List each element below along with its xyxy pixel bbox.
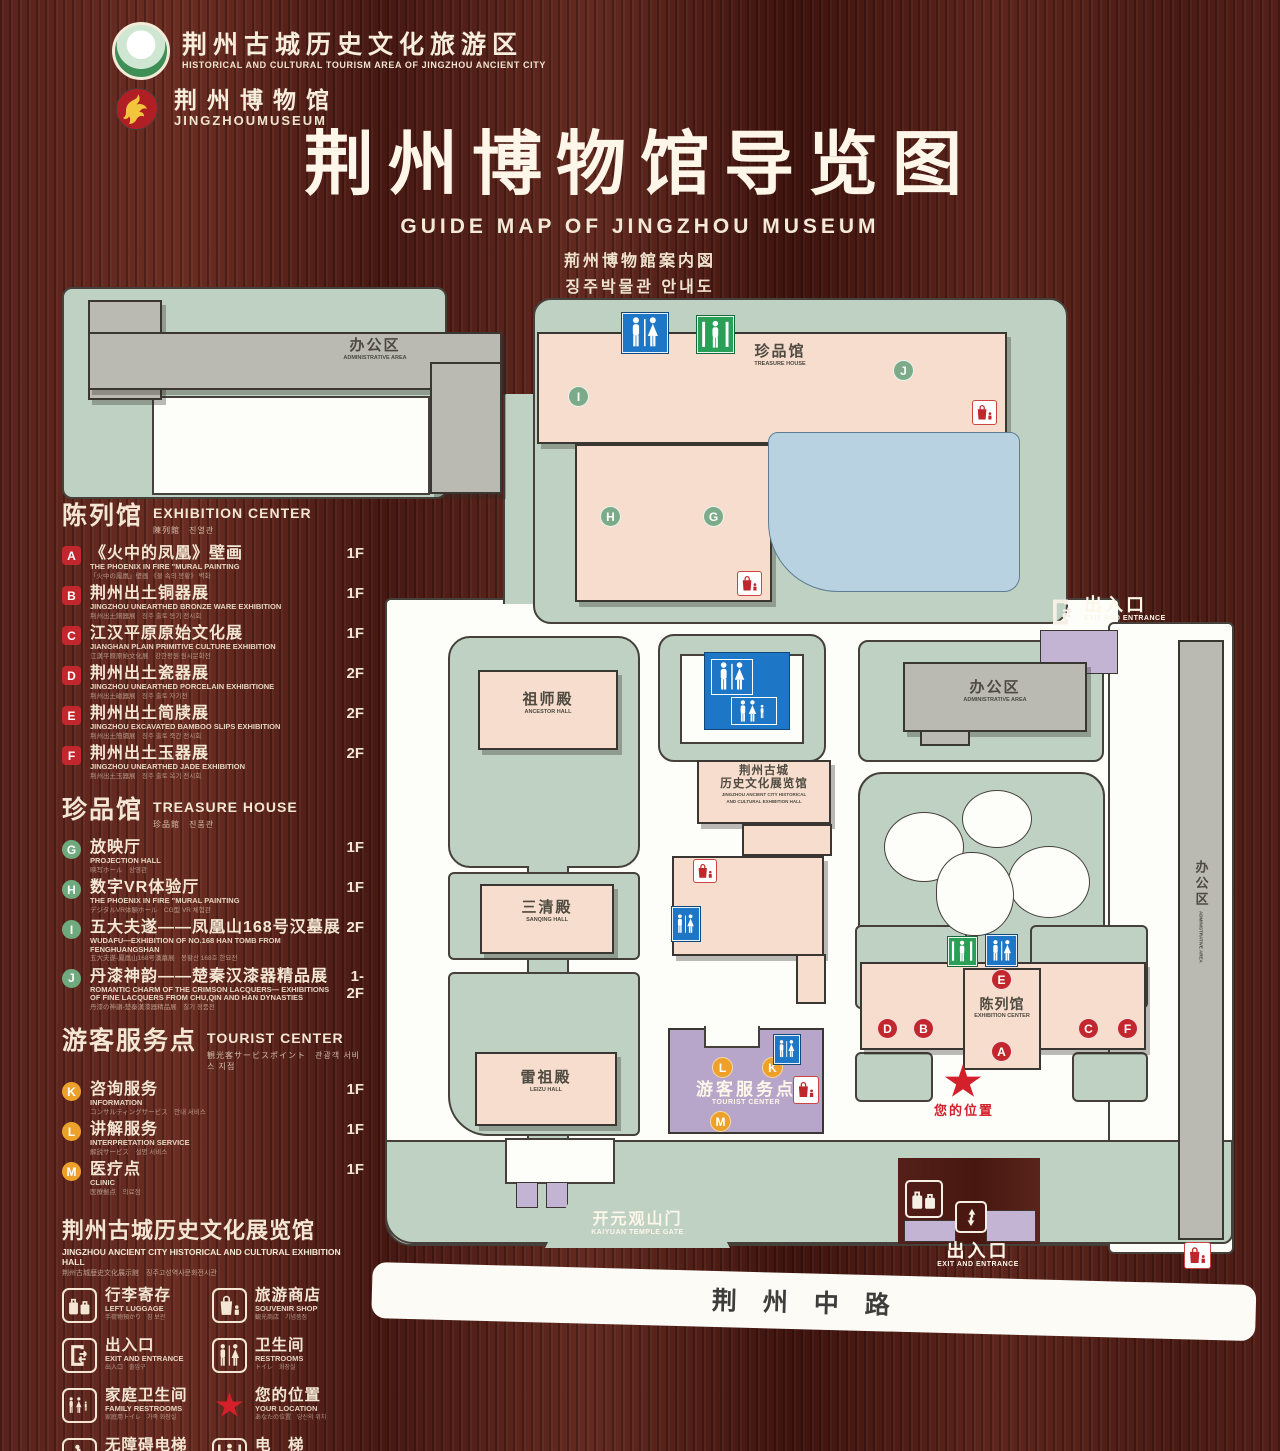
legend-item: L讲解服务INTERPRETATION SERVICE解説サービス 설명 서비스… (62, 1121, 364, 1156)
nw-office-building-wing (430, 362, 502, 494)
map-restroom-icon (622, 313, 668, 353)
garden-pond-blob (962, 790, 1032, 848)
map-marker-M: M (710, 1111, 731, 1132)
legend-section-title: 珍品馆 (62, 797, 143, 823)
page-title-en: GUIDE MAP OF JINGZHOU MUSEUM (280, 215, 1000, 239)
shop-icon (212, 1288, 247, 1323)
legend-section-title-sub: 観光客サービスポイント 관광객 서비스 지점 (207, 1050, 364, 1072)
legend-item-floor: 1F (334, 1161, 364, 1178)
legend-item-text: 丹漆神韵——楚秦汉漆器精品展ROMANTIC CHARM OF THE CRIM… (81, 968, 334, 1012)
luggage-icon (62, 1288, 97, 1323)
your-location-icon (212, 1388, 247, 1423)
page-title: 荆州博物馆导览图 (280, 108, 1000, 209)
exhibition-lawn (1072, 1052, 1148, 1102)
map-marker-H: H (600, 506, 621, 527)
legend-item: B荆州出土铜器展JINGZHOU UNEARTHED BRONZE WARE E… (62, 585, 364, 620)
center-hall-building-wing (796, 954, 826, 1004)
legend-symbols-grid: 行李寄存LEFT LUGGAGE手荷物預かり 짐 보관 旅游商店SOUVENIR… (62, 1288, 364, 1451)
legend-item-badge: M (62, 1162, 81, 1181)
legend-item-badge: J (62, 969, 81, 988)
legend-symbol-exit: 出入口EXIT AND ENTRANCE出入口 출입구 (62, 1338, 212, 1388)
legend-symbol-text: 出入口EXIT AND ENTRANCE出入口 출입구 (105, 1338, 183, 1372)
map-elevator-icon (697, 316, 734, 353)
gate-block (516, 1182, 538, 1208)
legend-item-floor: 1F (334, 545, 364, 562)
legend-item: K咨询服务INFORMATIONコンサルティングサービス 안내 서비스1F (62, 1081, 364, 1116)
legend-item-floor: 1F (334, 839, 364, 856)
garden-pond-blob (936, 852, 1014, 936)
legend-item-text: 荆州出土玉器展JINGZHOU UNEARTHED JADE EXHIBITIO… (81, 745, 334, 780)
legend-item-badge: H (62, 880, 81, 899)
legend-symbol-text: 家庭卫生间FAMILY RESTROOMS家庭用トイレ 가족 화장실 (105, 1388, 188, 1422)
legend-item-badge: I (62, 920, 81, 939)
bottom-exit-label: 出入口EXIT AND ENTRANCE (898, 1242, 1058, 1269)
tourism-area-logo-icon (112, 22, 170, 80)
your-location-label: 您的位置 (922, 1100, 1006, 1119)
legend-symbol-restroom: 卫生间RESTROOMSトイレ 화장실 (212, 1338, 362, 1388)
map-marker-L: L (712, 1057, 733, 1078)
legend-item-text: 江汉平原原始文化展JIANGHAN PLAIN PRIMITIVE CULTUR… (81, 625, 334, 660)
legend-symbol-text: 卫生间RESTROOMSトイレ 화장실 (255, 1338, 305, 1372)
legend-item-floor: 2F (334, 705, 364, 722)
legend-symbol-wheel: 无障碍电梯ACCESSIBLE ELEVATORバリアフリーエレベーター 무장애… (62, 1438, 212, 1451)
legend-item-text: 讲解服务INTERPRETATION SERVICE解説サービス 설명 서비스 (81, 1121, 334, 1156)
nw-office-label: 办公区ADMINISTRATIVE AREA (285, 338, 465, 362)
legend-item-floor: 1F (334, 625, 364, 642)
legend-item-badge: E (62, 706, 81, 725)
legend-symbol-text: 您的位置YOUR LOCATIONあなたの位置 당신의 위치 (255, 1388, 326, 1422)
nw-courtyard (152, 396, 430, 495)
family-icon (62, 1388, 97, 1423)
legend-item: A《火中的凤凰》壁画THE PHOENIX IN FIRE "MURAL PAI… (62, 545, 364, 580)
east-office-label: 办公区ADMINISTRATIVE AREA (905, 680, 1085, 704)
legend-item: J丹漆神韵——楚秦汉漆器精品展ROMANTIC CHARM OF THE CRI… (62, 968, 364, 1012)
map-updown-icon (955, 1201, 987, 1233)
top-exit-label: 出入口EXIT AND ENTRANCE (1084, 596, 1194, 623)
road-label: 荆州中路 (711, 1281, 916, 1322)
legend-item-floor: 1F (334, 585, 364, 602)
tourist-center-notch (704, 1026, 760, 1048)
legend-item-text: 咨询服务INFORMATIONコンサルティングサービス 안내 서비스 (81, 1081, 334, 1116)
legend-symbol-text: 旅游商店SOUVENIR SHOP観光商店 기념품점 (255, 1288, 321, 1322)
map-shop-icon (972, 400, 997, 425)
legend-item-floor: 2F (334, 665, 364, 682)
tourism-area-name: 荆州古城历史文化旅游区 (182, 32, 546, 58)
exhibition-center-label: 陈列馆EXHIBITION CENTER (958, 996, 1046, 1020)
strip-office-label: 办公区ADMINISTRATIVE AREA (1186, 860, 1216, 963)
legend-symbol-luggage: 行李寄存LEFT LUGGAGE手荷物預かり 짐 보관 (62, 1288, 212, 1338)
legend-item-text: 《火中的凤凰》壁画THE PHOENIX IN FIRE "MURAL PAIN… (81, 545, 334, 580)
legend-panel: 陈列馆 EXHIBITION CENTER 陳列館 진열관A《火中的凤凰》壁画T… (62, 503, 364, 1451)
legend-item-text: 五大夫遂——凤凰山168号汉墓展WUDAFU—EXHIBITION OF NO.… (81, 919, 334, 963)
legend-item: M医疗点CLINIC医療拠点 의료점1F (62, 1161, 364, 1196)
map-marker-G: G (703, 506, 724, 527)
legend-item: C江汉平原原始文化展JIANGHAN PLAIN PRIMITIVE CULTU… (62, 625, 364, 660)
ancestor-hall-label: 祖师殿ANCESTOR HALL (478, 692, 618, 716)
map-marker-A: A (991, 1041, 1012, 1062)
legend-item-floor: 1F (334, 1121, 364, 1138)
page-title-ja: 荊州博物館案内図 (280, 247, 1000, 271)
legend-symbol-text: 电 梯ELEVATORエレベーター 엘리베이터 (255, 1438, 325, 1451)
center-hall-label: 荆州古城 历史文化展览馆 JINGZHOU ANCIENT CITY HISTO… (697, 765, 831, 804)
legend-item-floor: 1F (334, 879, 364, 896)
legend-item: E荆州出土简牍展JINGZHOU EXCAVATED BAMBOO SLIPS … (62, 705, 364, 740)
map-marker-F: F (1117, 1018, 1138, 1039)
family-restroom-block (704, 652, 790, 730)
restroom-icon (212, 1338, 247, 1373)
legend-item-text: 荆州出土简牍展JINGZHOU EXCAVATED BAMBOO SLIPS E… (81, 705, 334, 740)
legend-section-header: 陈列馆 EXHIBITION CENTER 陳列館 진열관 (62, 503, 364, 536)
legend-item: I五大夫遂——凤凰山168号汉墓展WUDAFU—EXHIBITION OF NO… (62, 919, 364, 963)
east-office-building-step (920, 730, 970, 746)
top-exit-icon (1046, 597, 1080, 627)
legend-section-title: 陈列馆 (62, 503, 143, 529)
map-elevator-icon (948, 937, 977, 966)
legend-symbol-shop: 旅游商店SOUVENIR SHOP観光商店 기념품점 (212, 1288, 362, 1338)
legend-symbol-family: 家庭卫生间FAMILY RESTROOMS家庭用トイレ 가족 화장실 (62, 1388, 212, 1438)
map-shop-icon (737, 571, 762, 596)
legend-item-floor: 2F (334, 745, 364, 762)
leizu-hall-label: 雷祖殿LEIZU HALL (475, 1070, 617, 1094)
legend-section-title-en: EXHIBITION CENTER (153, 505, 312, 521)
legend-section-title-sub: 陳列館 진열관 (153, 525, 312, 536)
legend-section-header: 游客服务点 TOURIST CENTER 観光客サービスポイント 관광객 서비스… (62, 1028, 364, 1072)
title-block: 荆州博物馆导览图 GUIDE MAP OF JINGZHOU MUSEUM 荊州… (280, 108, 1000, 297)
restroom-icon (711, 659, 753, 695)
road: 荆州中路 (371, 1262, 1256, 1341)
center-hall-building-connector (742, 824, 832, 856)
south-entrance-block (986, 1210, 1036, 1242)
sanqing-hall-label: 三清殿SANQING HALL (480, 900, 614, 924)
elev-icon (212, 1438, 247, 1451)
legend-item-badge: A (62, 546, 81, 565)
guide-map-poster: 荆州古城历史文化旅游区 HISTORICAL AND CULTURAL TOUR… (0, 0, 1280, 1451)
phoenix-logo-icon (112, 82, 162, 134)
legend-symbol-location: 您的位置YOUR LOCATIONあなたの位置 당신의 위치 (212, 1388, 362, 1438)
exhibition-lawn (855, 1052, 933, 1102)
legend-item-text: 数字VR体验厅THE PHOENIX IN FIRE "MURAL PAINTI… (81, 879, 334, 914)
legend-item-badge: B (62, 586, 81, 605)
map-shop-icon (693, 859, 717, 883)
map-marker-D: D (877, 1018, 898, 1039)
legend-item-floor: 1F (334, 1081, 364, 1098)
map-shop-icon (1184, 1242, 1211, 1269)
pond (768, 432, 1020, 592)
legend-section-title-sub: 珍品館 진품관 (153, 819, 298, 830)
tourism-area-logo: 荆州古城历史文化旅游区 HISTORICAL AND CULTURAL TOUR… (112, 22, 546, 80)
gate-block (546, 1182, 568, 1208)
legend-item-badge: D (62, 666, 81, 685)
hall-note: 荆州古城历史文化展览馆JINGZHOU ANCIENT CITY HISTORI… (62, 1213, 364, 1278)
legend-item: F荆州出土玉器展JINGZHOU UNEARTHED JADE EXHIBITI… (62, 745, 364, 780)
legend-item: G放映厅PROJECTION HALL映写ホール 상영관1F (62, 839, 364, 874)
garden-pond-blob (1008, 846, 1090, 918)
legend-section-title-en: TOURIST CENTER (207, 1030, 344, 1046)
exit-icon (62, 1338, 97, 1373)
legend-item: H数字VR体验厅THE PHOENIX IN FIRE "MURAL PAINT… (62, 879, 364, 914)
legend-symbol-text: 行李寄存LEFT LUGGAGE手荷物預かり 짐 보관 (105, 1288, 171, 1322)
legend-item-floor: 1-2F (334, 968, 364, 1002)
map-marker-J: J (893, 360, 914, 381)
map-marker-C: C (1078, 1018, 1099, 1039)
legend-item-floor: 2F (334, 919, 364, 936)
family-restroom-icon (731, 697, 777, 725)
legend-item-badge: F (62, 746, 81, 765)
legend-item-text: 医疗点CLINIC医療拠点 의료점 (81, 1161, 334, 1196)
map-shop-icon (793, 1076, 819, 1104)
legend-item-text: 放映厅PROJECTION HALL映写ホール 상영관 (81, 839, 334, 874)
map-marker-I: I (568, 386, 589, 407)
tourism-area-name-en: HISTORICAL AND CULTURAL TOURISM AREA OF … (182, 60, 546, 70)
legend-item-text: 荆州出土瓷器展JINGZHOU UNEARTHED PORCELAIN EXHI… (81, 665, 334, 700)
legend-item-badge: G (62, 840, 81, 859)
legend-section-header: 珍品馆 TREASURE HOUSE 珍品館 진품관 (62, 797, 364, 830)
map-restroom-icon (672, 907, 700, 941)
legend-item-badge: K (62, 1082, 81, 1101)
map-restroom-icon (986, 935, 1017, 966)
legend-item-text: 荆州出土铜器展JINGZHOU UNEARTHED BRONZE WARE EX… (81, 585, 334, 620)
legend-item-badge: L (62, 1122, 81, 1141)
map-marker-E: E (991, 969, 1012, 990)
legend-symbol-elev: 电 梯ELEVATORエレベーター 엘리베이터 (212, 1438, 362, 1451)
legend-section-title: 游客服务点 (62, 1028, 197, 1054)
gate-label: 开元观山门KAIYUAN TEMPLE GATE (545, 1210, 730, 1237)
legend-item-badge: C (62, 626, 81, 645)
gate-path-notch (505, 1138, 615, 1184)
map-luggage-icon (905, 1180, 943, 1218)
legend-item: D荆州出土瓷器展JINGZHOU UNEARTHED PORCELAIN EXH… (62, 665, 364, 700)
treasure-house-label: 珍品馆TREASURE HOUSE (715, 344, 845, 368)
wheel-icon (62, 1438, 97, 1451)
south-entrance-block (904, 1220, 956, 1242)
legend-symbol-text: 无障碍电梯ACCESSIBLE ELEVATORバリアフリーエレベーター 무장애… (105, 1438, 212, 1451)
map-marker-B: B (913, 1018, 934, 1039)
legend-section-title-en: TREASURE HOUSE (153, 799, 298, 815)
map-restroom-icon (774, 1035, 800, 1064)
